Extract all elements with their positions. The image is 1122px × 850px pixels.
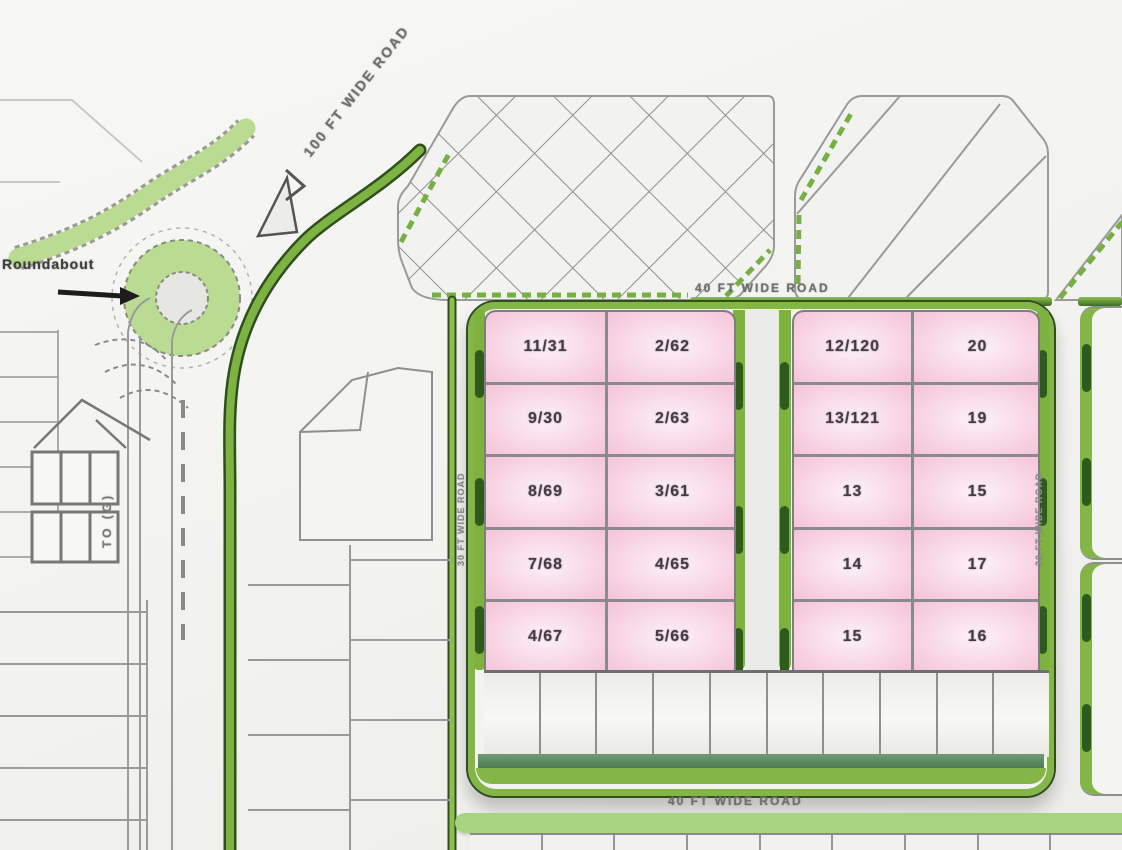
lot-cell[interactable]: 11/31 bbox=[486, 312, 605, 382]
south-block-partial bbox=[470, 833, 1122, 850]
lot-cell[interactable]: 2/63 bbox=[608, 385, 736, 455]
lot-number: 13/121 bbox=[825, 410, 880, 428]
lot-number: 13 bbox=[843, 483, 863, 501]
lot-cell[interactable]: 2/62 bbox=[608, 312, 736, 382]
building-footprint bbox=[300, 368, 432, 540]
lot-number: 11/31 bbox=[523, 338, 567, 356]
lot-cell[interactable] bbox=[711, 673, 766, 757]
west-building bbox=[32, 400, 150, 562]
top-road-label: 40 FT WIDE ROAD bbox=[695, 281, 830, 295]
commercial-row bbox=[484, 670, 1049, 757]
lot-cell[interactable] bbox=[484, 673, 539, 757]
lot-number: 9/30 bbox=[528, 410, 563, 428]
lot-number: 17 bbox=[968, 556, 988, 574]
residential-block-left: 11/31 2/62 9/30 2/63 8/69 3/61 7/68 4/65… bbox=[484, 310, 736, 674]
lot-cell[interactable] bbox=[541, 673, 596, 757]
road-destination-label: TO (G) bbox=[100, 493, 114, 548]
lot-cell[interactable]: 13 bbox=[794, 457, 911, 527]
main-super-block: 11/31 2/62 9/30 2/63 8/69 3/61 7/68 4/65… bbox=[466, 300, 1056, 798]
lot-number: 2/63 bbox=[655, 410, 690, 428]
lot-cell[interactable] bbox=[938, 673, 993, 757]
lot-number: 5/66 bbox=[655, 628, 690, 646]
left-block-road-label: 30 FT WIDE ROAD bbox=[456, 472, 466, 566]
roundabout-label: Roundabout bbox=[2, 256, 94, 272]
lot-number: 19 bbox=[968, 410, 988, 428]
corner-lot-block[interactable] bbox=[1056, 215, 1122, 300]
lot-number: 12/120 bbox=[825, 338, 880, 356]
lot-cell[interactable] bbox=[597, 673, 652, 757]
lot-cell[interactable]: 13/121 bbox=[794, 385, 911, 455]
greenbelt-bottom bbox=[476, 768, 1046, 784]
lot-cell[interactable] bbox=[994, 673, 1049, 757]
lot-cell[interactable]: 16 bbox=[914, 602, 1040, 672]
street-verge bbox=[1078, 297, 1122, 306]
lot-number: 4/67 bbox=[528, 628, 563, 646]
lot-number: 7/68 bbox=[528, 556, 563, 574]
lot-cell[interactable] bbox=[654, 673, 709, 757]
lot-cell[interactable]: 15 bbox=[794, 602, 911, 672]
lot-cell[interactable]: 20 bbox=[914, 312, 1040, 382]
lot-cell[interactable] bbox=[768, 673, 823, 757]
lot-cell[interactable]: 8/69 bbox=[486, 457, 605, 527]
lot-cell[interactable]: 19 bbox=[914, 385, 1040, 455]
lot-number: 15 bbox=[843, 628, 863, 646]
lot-cell[interactable]: 9/30 bbox=[486, 385, 605, 455]
triangle-lot-block[interactable] bbox=[795, 96, 1048, 300]
lot-cell[interactable]: 4/65 bbox=[608, 530, 736, 600]
greenbelt-verge bbox=[779, 310, 791, 670]
southwest-parcels bbox=[0, 600, 147, 850]
lot-cell[interactable]: 4/67 bbox=[486, 602, 605, 672]
lot-cell[interactable]: 12/120 bbox=[794, 312, 911, 382]
lot-number: 4/65 bbox=[655, 556, 690, 574]
lot-number: 3/61 bbox=[655, 483, 690, 501]
east-block-upper[interactable] bbox=[1080, 306, 1122, 560]
lot-number: 8/69 bbox=[528, 483, 563, 501]
s-curve-greenbelt bbox=[18, 128, 246, 258]
lot-cell[interactable]: 3/61 bbox=[608, 457, 736, 527]
lot-cell[interactable]: 5/66 bbox=[608, 602, 736, 672]
bottom-road-label: 40 FT WIDE ROAD bbox=[668, 794, 803, 808]
lot-cell[interactable] bbox=[881, 673, 936, 757]
north-arrow-icon bbox=[258, 170, 304, 236]
lot-cell[interactable]: 15 bbox=[914, 457, 1040, 527]
lot-cell[interactable]: 17 bbox=[914, 530, 1040, 600]
lot-cell[interactable]: 14 bbox=[794, 530, 911, 600]
site-plan-map: 11/31 2/62 9/30 2/63 8/69 3/61 7/68 4/65… bbox=[0, 0, 1122, 850]
lot-cell[interactable]: 7/68 bbox=[486, 530, 605, 600]
internal-street bbox=[745, 310, 779, 670]
lot-number: 16 bbox=[968, 628, 988, 646]
center-parcels bbox=[248, 545, 452, 850]
lot-number: 14 bbox=[843, 556, 863, 574]
east-block-lower[interactable] bbox=[1080, 562, 1122, 796]
residential-block-right: 12/120 20 13/121 19 13 15 14 17 15 16 bbox=[792, 310, 1040, 674]
lot-number: 20 bbox=[968, 338, 988, 356]
faint-parcel-outline bbox=[0, 100, 142, 182]
lot-cell[interactable] bbox=[824, 673, 879, 757]
center-block-road-label: 30 FT WIDE ROAD bbox=[1034, 472, 1044, 566]
lot-number: 2/62 bbox=[655, 338, 690, 356]
lot-number: 15 bbox=[968, 483, 988, 501]
bottom-greenbelt-band bbox=[455, 813, 1122, 833]
